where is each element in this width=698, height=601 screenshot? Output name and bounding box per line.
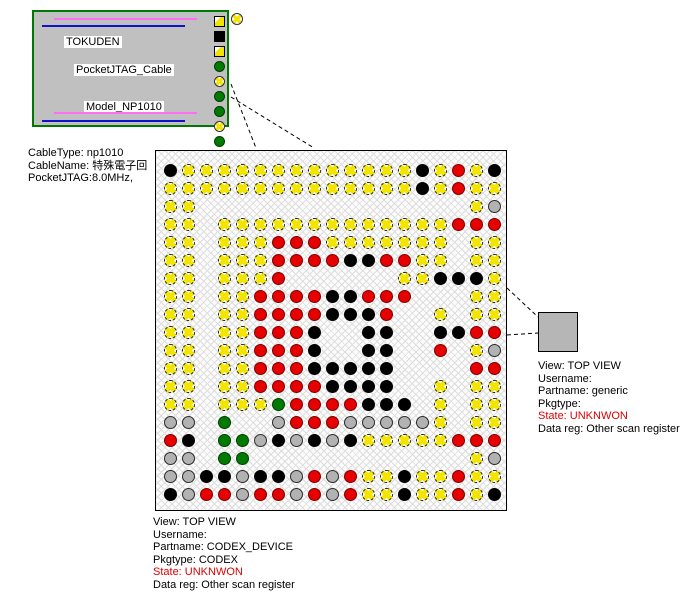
red-pin[interactable] [308,488,321,501]
yellow-open-pin[interactable] [416,434,429,447]
red-pin[interactable] [164,434,177,447]
device-view-text: View: TOP VIEW [153,516,295,529]
yellow-open-pin[interactable] [470,182,483,195]
red-pin[interactable] [308,398,321,411]
yellow-open-pin[interactable] [434,434,447,447]
yellow-open-pin[interactable] [272,218,285,231]
gray-pin[interactable] [290,434,303,447]
yellow-open-pin[interactable] [362,236,375,249]
yellow-open-pin[interactable] [236,182,249,195]
yellow-open-pin[interactable] [236,272,249,285]
yellow-open-pin[interactable] [308,218,321,231]
black-pin[interactable] [380,326,393,339]
black-pin[interactable] [254,470,267,483]
yellow-open-pin[interactable] [362,164,375,177]
red-pin[interactable] [290,308,303,321]
yellow-open-pin[interactable] [182,362,195,375]
yellow-open-pin[interactable] [290,182,303,195]
yellow-open-pin[interactable] [236,164,249,177]
green-pin[interactable] [218,434,231,447]
yellow-open-pin[interactable] [218,236,231,249]
yellow-open-pin[interactable] [236,380,249,393]
gray-pin[interactable] [236,488,249,501]
gray-pin[interactable] [164,416,177,429]
yellow-open-pin[interactable] [470,254,483,267]
cable-speed-text: PocketJTAG:8.0MHz, [28,172,147,185]
yellow-open-pin[interactable] [416,254,429,267]
red-pin[interactable] [344,488,357,501]
gray-pin[interactable] [326,470,339,483]
yellow-open-pin[interactable] [326,182,339,195]
yellow-open-pin[interactable] [236,254,249,267]
yellow-open-pin[interactable] [434,416,447,429]
yellow-open-pin[interactable] [470,470,483,483]
yellow-open-pin[interactable] [290,218,303,231]
red-pin[interactable] [488,218,501,231]
red-pin[interactable] [470,434,483,447]
yellow-open-pin[interactable] [470,200,483,213]
yellow-open-pin[interactable] [380,182,393,195]
black-pin[interactable] [362,344,375,357]
gray-pin[interactable] [326,434,339,447]
green-circle-icon [214,91,225,102]
yellow-open-pin[interactable] [416,236,429,249]
yellow-open-pin[interactable] [182,398,195,411]
black-pin[interactable] [416,164,429,177]
yellow-open-pin[interactable] [236,290,249,303]
yellow-open-pin[interactable] [164,398,177,411]
red-pin[interactable] [272,254,285,267]
yellow-open-pin[interactable] [254,218,267,231]
black-pin[interactable] [362,398,375,411]
yellow-open-pin[interactable] [254,272,267,285]
red-pin[interactable] [272,290,285,303]
yellow-open-pin[interactable] [470,380,483,393]
yellow-open-pin[interactable] [470,308,483,321]
green-pin[interactable] [236,434,249,447]
yellow-open-pin[interactable] [434,218,447,231]
yellow-open-pin[interactable] [272,182,285,195]
black-pin[interactable] [308,326,321,339]
red-pin[interactable] [308,470,321,483]
red-pin[interactable] [452,434,465,447]
red-pin[interactable] [398,290,411,303]
yellow-open-pin[interactable] [182,182,195,195]
yellow-open-pin[interactable] [416,218,429,231]
red-pin[interactable] [272,488,285,501]
green-pin[interactable] [236,452,249,465]
yellow-open-pin[interactable] [470,488,483,501]
black-pin[interactable] [218,470,231,483]
yellow-open-pin[interactable] [398,236,411,249]
yellow-open-pin[interactable] [218,380,231,393]
red-pin[interactable] [254,308,267,321]
gray-pin[interactable] [416,416,429,429]
red-pin[interactable] [272,362,285,375]
yellow-open-pin[interactable] [164,380,177,393]
yellow-open-pin[interactable] [362,182,375,195]
red-pin[interactable] [290,254,303,267]
remote-state-text: State: UNKNWON [538,410,680,423]
yellow-open-pin[interactable] [380,470,393,483]
red-pin[interactable] [452,488,465,501]
black-pin[interactable] [380,362,393,375]
yellow-open-pin[interactable] [380,218,393,231]
black-pin[interactable] [164,488,177,501]
yellow-open-pin[interactable] [164,326,177,339]
black-pin[interactable] [308,362,321,375]
gray-pin[interactable] [182,452,195,465]
red-pin[interactable] [326,254,339,267]
gray-pin[interactable] [182,488,195,501]
yellow-open-pin[interactable] [470,290,483,303]
red-pin[interactable] [344,470,357,483]
black-pin[interactable] [326,308,339,321]
red-pin[interactable] [218,488,231,501]
gray-pin[interactable] [398,416,411,429]
red-pin[interactable] [452,164,465,177]
black-pin[interactable] [416,182,429,195]
yellow-open-pin[interactable] [380,236,393,249]
yellow-open-pin[interactable] [380,488,393,501]
red-pin[interactable] [434,344,447,357]
red-pin[interactable] [308,254,321,267]
red-pin[interactable] [290,290,303,303]
yellow-open-pin[interactable] [434,236,447,249]
black-pin[interactable] [272,434,285,447]
black-pin[interactable] [362,308,375,321]
yellow-open-pin[interactable] [362,434,375,447]
yellow-open-pin[interactable] [488,308,501,321]
yellow-open-pin[interactable] [416,488,429,501]
red-pin[interactable] [290,362,303,375]
yellow-open-pin[interactable] [182,218,195,231]
red-pin[interactable] [308,416,321,429]
yellow-open-pin[interactable] [434,380,447,393]
yellow-open-pin[interactable] [218,290,231,303]
gray-pin[interactable] [290,470,303,483]
yellow-open-pin[interactable] [362,488,375,501]
red-pin[interactable] [254,290,267,303]
gray-pin[interactable] [488,344,501,357]
black-pin[interactable] [344,362,357,375]
red-pin[interactable] [200,488,213,501]
yellow-open-pin[interactable] [182,164,195,177]
red-pin[interactable] [290,344,303,357]
gray-pin[interactable] [254,434,267,447]
red-pin[interactable] [272,272,285,285]
yellow-open-pin[interactable] [254,398,267,411]
yellow-square-icon [214,16,225,27]
red-pin[interactable] [254,488,267,501]
red-pin[interactable] [308,290,321,303]
red-pin[interactable] [290,326,303,339]
yellow-open-pin[interactable] [164,272,177,285]
black-pin[interactable] [380,398,393,411]
black-pin[interactable] [308,434,321,447]
yellow-open-pin[interactable] [434,488,447,501]
bga-package-top-view[interactable] [155,150,507,511]
yellow-open-pin[interactable] [488,236,501,249]
yellow-open-pin[interactable] [164,182,177,195]
yellow-open-pin[interactable] [434,470,447,483]
yellow-open-pin[interactable] [254,254,267,267]
red-pin[interactable] [272,308,285,321]
yellow-open-pin[interactable] [434,254,447,267]
yellow-open-pin[interactable] [182,308,195,321]
yellow-open-pin[interactable] [488,272,501,285]
yellow-open-pin[interactable] [362,218,375,231]
yellow-open-pin[interactable] [164,254,177,267]
red-pin[interactable] [272,344,285,357]
black-pin[interactable] [452,326,465,339]
yellow-open-pin[interactable] [182,290,195,303]
red-pin[interactable] [380,290,393,303]
red-pin[interactable] [488,434,501,447]
yellow-open-pin[interactable] [236,218,249,231]
red-pin[interactable] [380,254,393,267]
red-pin[interactable] [290,398,303,411]
red-pin[interactable] [380,308,393,321]
yellow-open-pin[interactable] [218,362,231,375]
yellow-open-pin[interactable] [182,344,195,357]
yellow-open-pin[interactable] [488,182,501,195]
yellow-open-pin[interactable] [236,236,249,249]
gray-pin[interactable] [326,488,339,501]
yellow-open-pin[interactable] [488,470,501,483]
red-pin[interactable] [254,362,267,375]
black-pin[interactable] [362,362,375,375]
red-pin[interactable] [398,254,411,267]
yellow-open-pin[interactable] [182,326,195,339]
cable-stripe-pink-top [54,18,197,20]
yellow-open-pin[interactable] [200,182,213,195]
red-pin[interactable] [344,398,357,411]
yellow-open-pin[interactable] [182,200,195,213]
yellow-open-pin[interactable] [254,164,267,177]
black-pin[interactable] [380,344,393,357]
yellow-open-pin[interactable] [164,236,177,249]
yellow-open-pin[interactable] [164,344,177,357]
gray-pin[interactable] [362,416,375,429]
yellow-open-pin[interactable] [326,236,339,249]
black-pin[interactable] [344,434,357,447]
black-pin[interactable] [362,380,375,393]
yellow-open-pin[interactable] [380,434,393,447]
black-pin[interactable] [488,164,501,177]
yellow-open-pin[interactable] [164,362,177,375]
black-pin[interactable] [398,398,411,411]
cable-product-label: PocketJTAG_Cable [74,64,174,76]
red-pin[interactable] [254,380,267,393]
red-pin[interactable] [308,380,321,393]
yellow-open-pin[interactable] [398,434,411,447]
black-pin[interactable] [182,434,195,447]
yellow-open-pin[interactable] [344,164,357,177]
red-pin[interactable] [326,398,339,411]
red-pin[interactable] [308,236,321,249]
black-pin[interactable] [326,362,339,375]
yellow-open-pin[interactable] [488,290,501,303]
yellow-open-pin[interactable] [182,380,195,393]
gray-pin[interactable] [488,452,501,465]
black-pin[interactable] [380,380,393,393]
green-pin[interactable] [218,452,231,465]
yellow-open-pin[interactable] [218,164,231,177]
yellow-open-pin[interactable] [164,308,177,321]
black-pin[interactable] [362,254,375,267]
yellow-open-pin[interactable] [182,236,195,249]
yellow-open-pin[interactable] [218,398,231,411]
jtag-cable-device[interactable]: TOKUDEN PocketJTAG_Cable Model_NP1010 [32,10,229,127]
yellow-open-pin[interactable] [398,272,411,285]
red-pin[interactable] [254,326,267,339]
yellow-open-pin[interactable] [470,164,483,177]
red-pin[interactable] [272,326,285,339]
yellow-open-pin[interactable] [488,398,501,411]
green-pin[interactable] [218,416,231,429]
red-pin[interactable] [362,290,375,303]
yellow-open-pin[interactable] [218,254,231,267]
yellow-open-pin[interactable] [326,218,339,231]
yellow-open-pin[interactable] [182,254,195,267]
red-pin[interactable] [290,236,303,249]
yellow-open-pin[interactable] [308,182,321,195]
black-pin[interactable] [272,470,285,483]
black-pin[interactable] [344,290,357,303]
red-pin[interactable] [326,416,339,429]
yellow-open-pin[interactable] [218,272,231,285]
yellow-open-pin[interactable] [182,272,195,285]
black-pin[interactable] [398,470,411,483]
red-pin[interactable] [452,218,465,231]
red-pin[interactable] [488,326,501,339]
red-pin[interactable] [470,362,483,375]
device-datareg-text: Data reg: Other scan register [153,579,295,592]
black-pin[interactable] [344,380,357,393]
yellow-open-pin[interactable] [218,182,231,195]
red-pin[interactable] [272,236,285,249]
yellow-open-pin[interactable] [344,218,357,231]
black-pin[interactable] [344,254,357,267]
red-pin[interactable] [272,380,285,393]
yellow-open-pin[interactable] [344,236,357,249]
gray-pin[interactable] [488,200,501,213]
red-pin[interactable] [290,380,303,393]
red-pin[interactable] [470,218,483,231]
gray-pin[interactable] [290,488,303,501]
green-pin[interactable] [272,398,285,411]
gray-pin[interactable] [182,470,195,483]
yellow-open-pin[interactable] [290,164,303,177]
gray-pin[interactable] [182,416,195,429]
yellow-open-pin[interactable] [470,452,483,465]
yellow-open-pin[interactable] [488,254,501,267]
yellow-open-pin[interactable] [218,326,231,339]
red-pin[interactable] [470,326,483,339]
yellow-open-pin[interactable] [434,182,447,195]
yellow-open-pin[interactable] [470,236,483,249]
remote-view-text: View: TOP VIEW [538,360,680,373]
gray-pin[interactable] [344,416,357,429]
yellow-open-pin[interactable] [470,398,483,411]
yellow-open-pin[interactable] [164,290,177,303]
yellow-open-pin[interactable] [398,164,411,177]
gray-pin[interactable] [236,470,249,483]
yellow-open-pin[interactable] [164,200,177,213]
yellow-open-pin[interactable] [362,470,375,483]
yellow-open-pin[interactable] [416,272,429,285]
yellow-open-pin[interactable] [308,164,321,177]
black-pin[interactable] [200,470,213,483]
yellow-open-pin[interactable] [236,308,249,321]
generic-device-info-block: View: TOP VIEW Username: Partname: gener… [538,360,680,435]
yellow-open-pin[interactable] [200,164,213,177]
yellow-open-pin[interactable] [254,182,267,195]
yellow-open-pin[interactable] [236,326,249,339]
black-pin[interactable] [308,344,321,357]
yellow-open-pin[interactable] [398,182,411,195]
yellow-open-pin[interactable] [344,182,357,195]
black-pin[interactable] [164,164,177,177]
gray-pin[interactable] [272,416,285,429]
red-pin[interactable] [452,470,465,483]
red-pin[interactable] [290,416,303,429]
yellow-open-pin[interactable] [218,218,231,231]
gray-pin[interactable] [164,452,177,465]
black-pin[interactable] [452,272,465,285]
black-pin[interactable] [434,326,447,339]
black-pin[interactable] [434,272,447,285]
black-pin[interactable] [344,308,357,321]
cable-type-text: CableType: np1010 [28,147,147,160]
yellow-open-pin[interactable] [434,398,447,411]
yellow-open-pin[interactable] [488,380,501,393]
gray-pin[interactable] [380,416,393,429]
yellow-open-pin[interactable] [164,218,177,231]
yellow-open-pin[interactable] [398,218,411,231]
red-pin[interactable] [488,362,501,375]
yellow-open-pin[interactable] [488,416,501,429]
yellow-open-pin[interactable] [326,164,339,177]
yellow-open-pin[interactable] [416,470,429,483]
yellow-open-pin[interactable] [254,236,267,249]
yellow-open-pin[interactable] [236,362,249,375]
yellow-open-pin[interactable] [434,164,447,177]
black-pin[interactable] [398,488,411,501]
black-pin[interactable] [326,380,339,393]
yellow-open-pin[interactable] [218,308,231,321]
gray-pin[interactable] [164,470,177,483]
cable-pin-legend [212,16,226,151]
black-pin[interactable] [470,272,483,285]
yellow-open-pin[interactable] [236,398,249,411]
red-pin[interactable] [452,182,465,195]
black-pin[interactable] [362,326,375,339]
yellow-open-pin[interactable] [236,344,249,357]
yellow-open-pin[interactable] [470,344,483,357]
yellow-open-pin[interactable] [470,416,483,429]
red-pin[interactable] [254,344,267,357]
black-pin[interactable] [326,290,339,303]
black-pin[interactable] [488,488,501,501]
yellow-open-pin[interactable] [434,308,447,321]
yellow-open-pin[interactable] [380,164,393,177]
red-pin[interactable] [308,308,321,321]
yellow-open-pin[interactable] [272,164,285,177]
generic-device-square[interactable] [538,312,578,352]
yellow-open-pin[interactable] [218,344,231,357]
